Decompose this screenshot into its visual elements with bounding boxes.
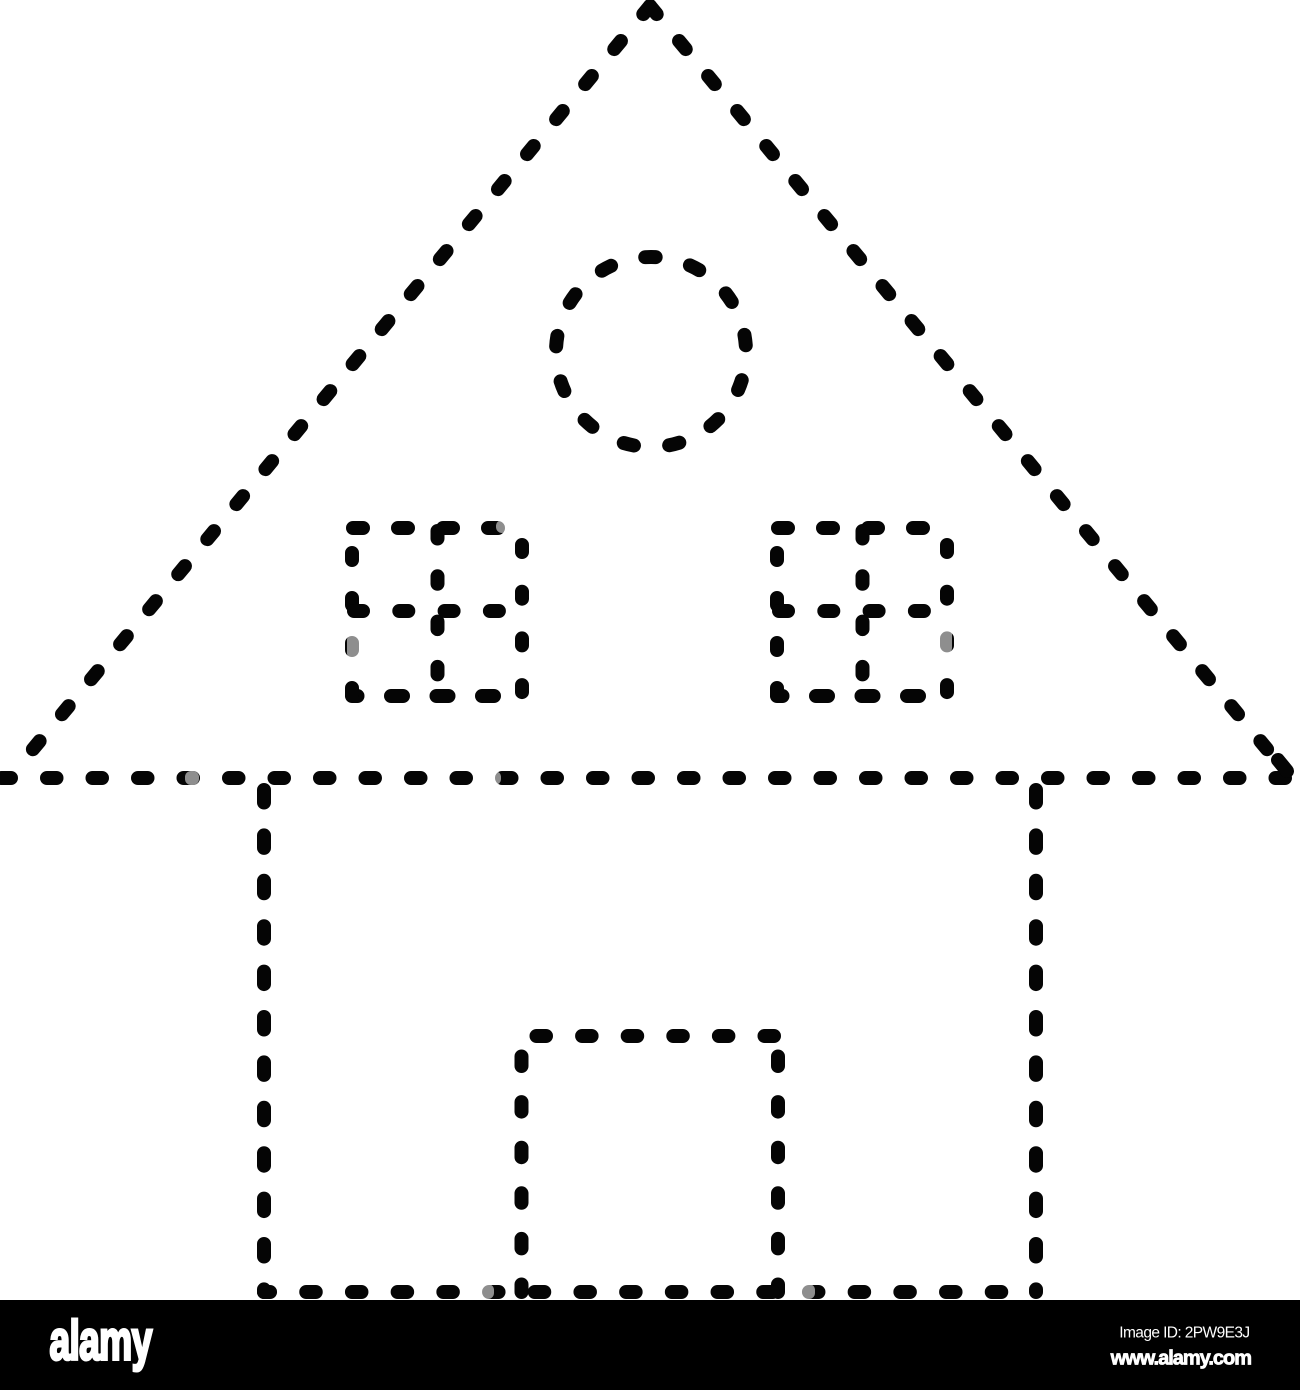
svg-text:www.alamy.com: www.alamy.com — [1110, 1348, 1252, 1370]
svg-text:alamy: alamy — [50, 1310, 153, 1372]
svg-text:Image ID: 2PW9E3J: Image ID: 2PW9E3J — [1119, 1325, 1249, 1342]
